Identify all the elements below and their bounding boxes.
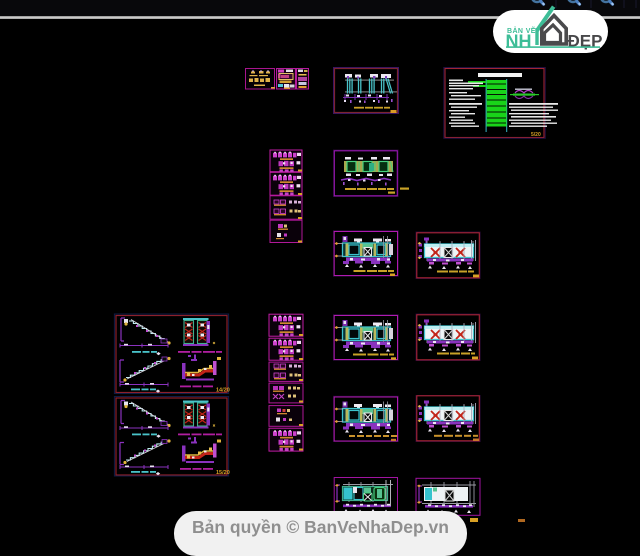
svg-text:14/20: 14/20 bbox=[216, 388, 230, 394]
svg-text:NH: NH bbox=[506, 32, 532, 52]
svg-text:15/20: 15/20 bbox=[216, 470, 230, 476]
svg-text:5/20: 5/20 bbox=[531, 132, 541, 138]
